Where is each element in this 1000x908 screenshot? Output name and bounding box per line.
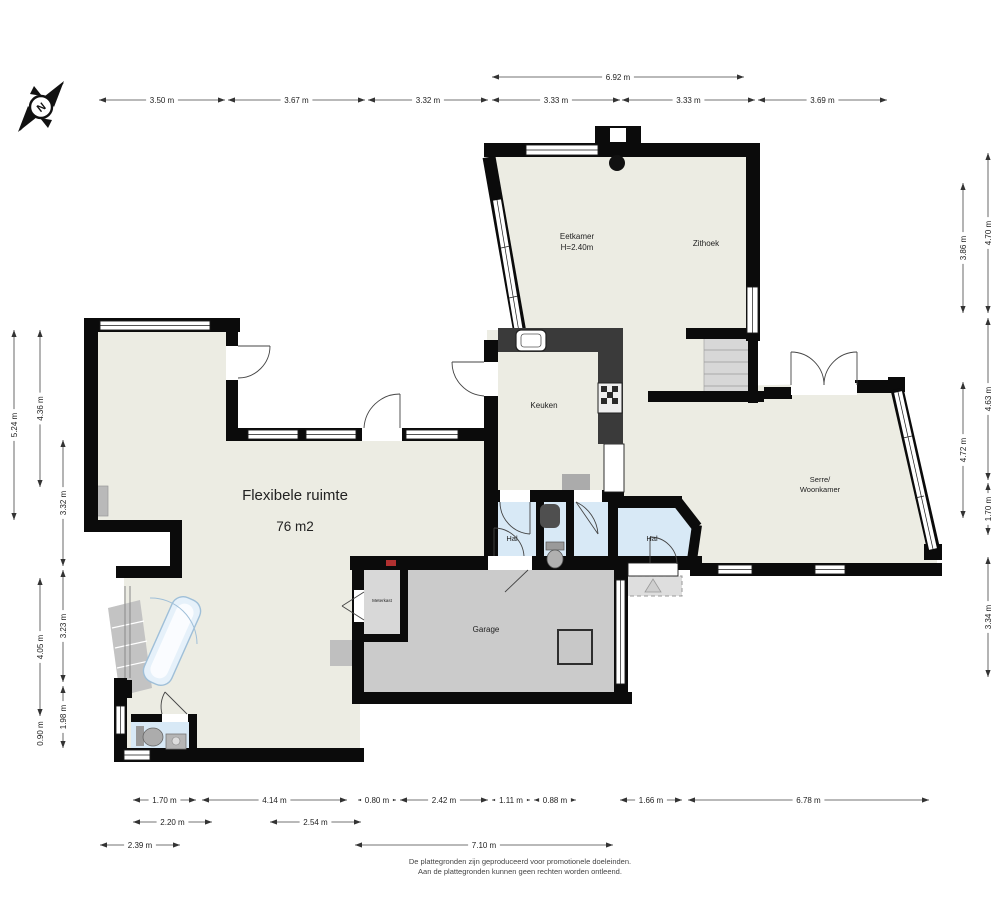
dimension: 3.32 m (58, 440, 68, 566)
dim-label: 6.78 m (796, 796, 821, 805)
dimension: 3.32 m (368, 95, 488, 105)
dimension: 2.42 m (400, 795, 488, 805)
dimension: 0.90 m (35, 718, 45, 750)
dim-label: 1.70 m (152, 796, 177, 805)
compass: N (18, 81, 64, 132)
dim-label: 1.98 m (59, 704, 68, 729)
dim-label: 0.90 m (36, 721, 45, 746)
keuken-label: Keuken (530, 401, 557, 410)
dim-label: 4.70 m (984, 220, 993, 245)
serre-label-line2: Woonkamer (800, 485, 841, 494)
dimension: 3.69 m (758, 95, 887, 105)
floors (95, 150, 937, 752)
dim-label: 3.33 m (544, 96, 569, 105)
dimension: 3.34 m (983, 557, 993, 677)
dim-label: 3.34 m (984, 604, 993, 629)
dim-label: 3.32 m (59, 490, 68, 515)
dim-label: 5.24 m (10, 412, 19, 437)
dim-label: 3.23 m (59, 613, 68, 638)
dimension: 1.70 m (983, 483, 993, 535)
dimension: 7.10 m (355, 840, 613, 850)
floorplan-page: N Eetkamer H=2.40m Zithoek Keuken Serre/… (0, 0, 1000, 908)
dim-label: 4.72 m (959, 437, 968, 462)
dimension: 3.67 m (228, 95, 365, 105)
dimension: 6.78 m (688, 795, 929, 805)
dim-label: 6.92 m (606, 73, 631, 82)
entrance-porch (624, 576, 682, 596)
dimension: 4.05 m (35, 578, 45, 716)
flexibele-label: Flexibele ruimte (242, 487, 348, 504)
stairs (704, 338, 750, 392)
garage-skylight (558, 630, 592, 664)
stove (598, 383, 622, 413)
dimension: 2.54 m (270, 817, 361, 827)
dimension: 0.80 m (358, 795, 396, 805)
dimension: 5.24 m (9, 330, 19, 520)
zithoek-label: Zithoek (693, 239, 720, 248)
dim-label: 2.39 m (128, 841, 153, 850)
dim-label: 2.54 m (303, 818, 328, 827)
meterkast-floor (360, 566, 404, 640)
dim-label: 3.33 m (676, 96, 701, 105)
dimension: 3.23 m (58, 570, 68, 682)
dimension: 3.33 m (622, 95, 755, 105)
footer-line2: Aan de plattegronden kunnen geen rechten… (418, 867, 622, 876)
dim-label: 4.36 m (36, 396, 45, 421)
dim-label: 3.32 m (416, 96, 441, 105)
meterkast-marker (386, 560, 396, 566)
floorplan-svg: N Eetkamer H=2.40m Zithoek Keuken Serre/… (0, 0, 1000, 908)
dimension: 4.63 m (983, 318, 993, 480)
dim-label: 3.86 m (959, 235, 968, 260)
footer-line1: De plattegronden zijn geproduceerd voor … (409, 857, 631, 866)
dimension: 4.70 m (983, 153, 993, 313)
dimension: 4.14 m (202, 795, 347, 805)
serre-label-line1: Serre/ (810, 475, 831, 484)
dim-label: 3.67 m (284, 96, 309, 105)
kitchen-sink (516, 330, 546, 351)
hal-left-label: Hal (506, 534, 518, 543)
dimension: 2.39 m (100, 840, 180, 850)
dimension: 2.20 m (133, 817, 212, 827)
dimension: 4.36 m (35, 330, 45, 487)
dimension: 1.66 m (620, 795, 682, 805)
footer-disclaimer: De plattegronden zijn geproduceerd voor … (409, 857, 631, 876)
dimension: 1.98 m (58, 686, 68, 748)
dimension: 3.50 m (99, 95, 225, 105)
dimension: 3.33 m (492, 95, 620, 105)
eetkamer-height-note: H=2.40m (561, 243, 594, 252)
dim-label: 3.69 m (810, 96, 835, 105)
dim-label: 4.14 m (262, 796, 287, 805)
dimension: 4.72 m (958, 382, 968, 518)
garage-label: Garage (473, 625, 500, 634)
dim-label: 0.80 m (365, 796, 390, 805)
dim-label: 7.10 m (472, 841, 497, 850)
dim-label: 3.50 m (150, 96, 175, 105)
flexibele-area: 76 m2 (276, 519, 314, 534)
dim-label: 2.20 m (160, 818, 185, 827)
dimension: 0.88 m (534, 795, 576, 805)
hal-right-label: Hal (646, 534, 658, 543)
dim-label: 1.11 m (499, 796, 523, 805)
wood-stove (609, 155, 625, 171)
meterkast-label: Meterkast (372, 598, 393, 603)
dim-label: 4.05 m (36, 634, 45, 659)
dim-label: 4.63 m (984, 386, 993, 411)
dimension: 6.92 m (492, 72, 744, 82)
dimension: 1.70 m (133, 795, 196, 805)
eetkamer-label: Eetkamer (560, 232, 595, 241)
dim-label: 0.88 m (543, 796, 568, 805)
dimension: 3.86 m (958, 183, 968, 313)
dim-label: 2.42 m (432, 796, 457, 805)
dimension: 1.11 m (492, 795, 530, 805)
dim-label: 1.70 m (984, 496, 993, 521)
dim-label: 1.66 m (639, 796, 664, 805)
